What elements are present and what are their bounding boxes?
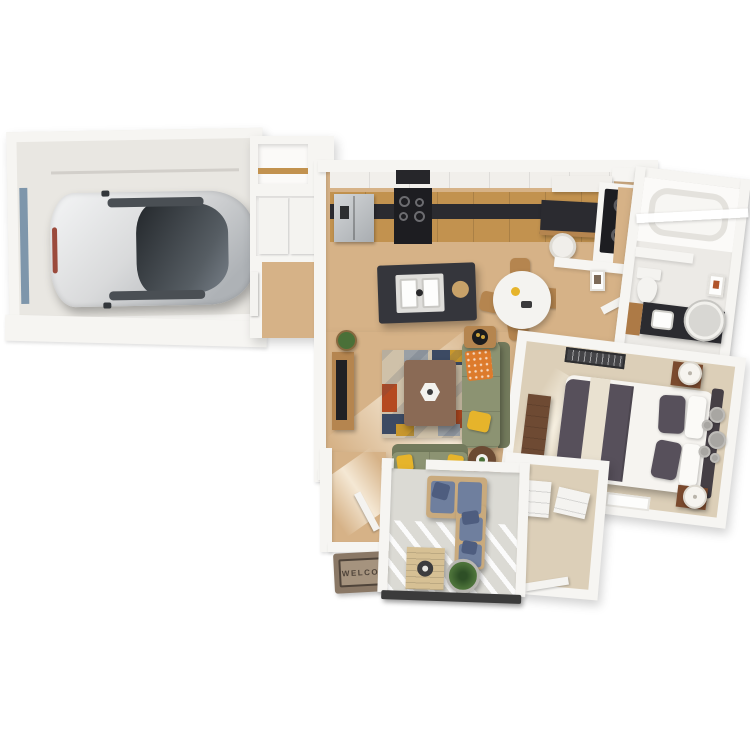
sink-basin-right: [421, 278, 440, 309]
living-plant: [336, 330, 357, 351]
burner-4: [414, 211, 425, 222]
decor-circle-3: [707, 430, 727, 450]
desk-chair: [549, 232, 577, 260]
outdoor-pillow-3: [461, 540, 478, 555]
hall-art-print: [594, 275, 601, 284]
hall-wall-art: [590, 270, 605, 291]
toilet-bowl: [635, 276, 658, 304]
garage-door-opener-rail: [51, 168, 239, 174]
refrigerator: [334, 194, 374, 242]
garage-front-exterior-wall: [5, 315, 268, 348]
range: [394, 188, 432, 244]
garage: [6, 128, 265, 328]
patio: [377, 458, 530, 605]
decor-circle-5: [709, 452, 720, 463]
garage-entry-door: [250, 272, 258, 316]
gold-decor-2: [481, 335, 485, 339]
closet-door-left: [259, 198, 288, 254]
gold-decor-1: [476, 333, 480, 337]
tub-partition-wall: [635, 247, 694, 264]
bathroom: [613, 166, 750, 365]
coffee-table: [404, 360, 456, 426]
sectional-cushion-2: [457, 482, 482, 515]
orange-throw-blanket: [465, 349, 494, 382]
dining-table: [493, 271, 551, 329]
car-mirror-bottom: [103, 302, 111, 308]
decor-circle-2: [701, 419, 713, 431]
fridge-dispenser: [340, 206, 349, 219]
car-mirror-top: [101, 190, 109, 196]
sofa-long: [462, 342, 510, 448]
black-tray: [472, 329, 488, 345]
bathroom-art-print: [713, 280, 720, 289]
pantry-shelf: [258, 168, 308, 174]
bathtub: [637, 177, 740, 252]
burner-1: [399, 196, 410, 207]
car: [49, 190, 255, 308]
bathroom-wall-art: [707, 274, 726, 298]
garage-door-panel: [19, 188, 29, 304]
outdoor-pillow-2: [461, 510, 480, 525]
vanity-sink: [650, 309, 674, 331]
car-taillight: [52, 227, 58, 273]
hex-tray-decor: [427, 389, 433, 395]
fridge-door-seam: [353, 196, 355, 240]
front-hall-left-wall: [320, 448, 332, 552]
pantry: [258, 144, 308, 184]
wall-circle-decor: [697, 405, 732, 468]
television: [336, 360, 347, 420]
burner-3: [399, 212, 408, 221]
entry-closet: [256, 196, 322, 256]
cutting-board: [452, 281, 470, 299]
table-decor-dark: [521, 301, 532, 308]
floor-plan-render: WELCOME: [0, 0, 750, 750]
kitchen-back-wall: [318, 160, 658, 172]
main-left-wall: [314, 160, 326, 482]
range-hood: [396, 170, 430, 184]
tray-side-table: [464, 326, 496, 348]
toilet: [633, 267, 661, 306]
table-decor-yellow: [511, 287, 520, 296]
accent-pillow-1: [658, 395, 686, 434]
burner-2: [415, 198, 424, 207]
car-roof-glass: [136, 202, 230, 294]
car-side-window-top: [107, 197, 203, 208]
sink-unit: [395, 273, 444, 313]
kitchen-island: [377, 262, 477, 323]
outdoor-coffee-table: [405, 547, 444, 590]
car-side-window-bottom: [109, 290, 205, 301]
